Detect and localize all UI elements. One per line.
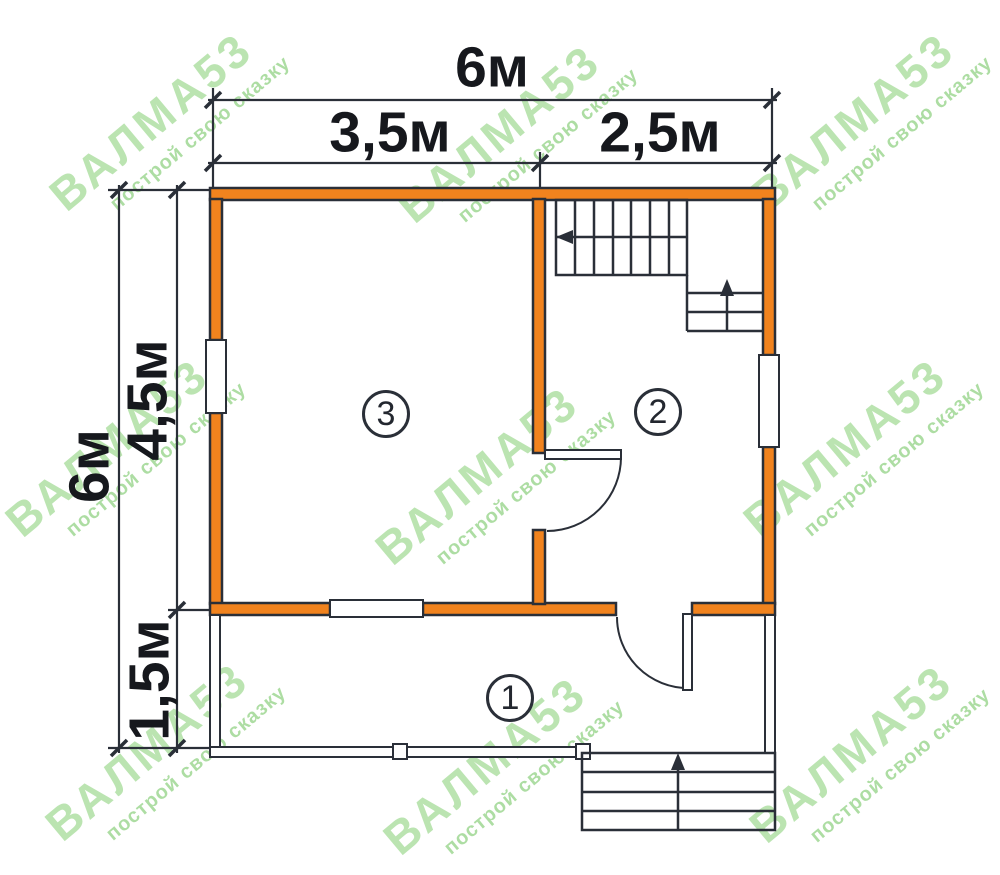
room-number-label: 1 — [501, 681, 520, 715]
dim-label-top-total: 6м — [455, 40, 529, 97]
dim-label-top-right: 2,5м — [599, 105, 720, 162]
room-number-label: 3 — [377, 397, 396, 431]
dim-label-side-upper: 4,5м — [120, 339, 177, 460]
label-layer: 6м 3,5м 2,5м 6м 4,5м 1,5м 3 2 1 — [0, 0, 1000, 875]
floor-plan-canvas: ВАЛМА53 построй свою сказку ВАЛМА53 пост… — [0, 0, 1000, 875]
room-number-label: 2 — [649, 395, 668, 429]
room-number-1: 1 — [486, 674, 534, 722]
dim-label-side-total: 6м — [62, 429, 119, 503]
dim-label-top-left: 3,5м — [329, 105, 450, 162]
dim-label-side-lower: 1,5м — [122, 619, 179, 740]
room-number-3: 3 — [362, 390, 410, 438]
room-number-2: 2 — [634, 388, 682, 436]
